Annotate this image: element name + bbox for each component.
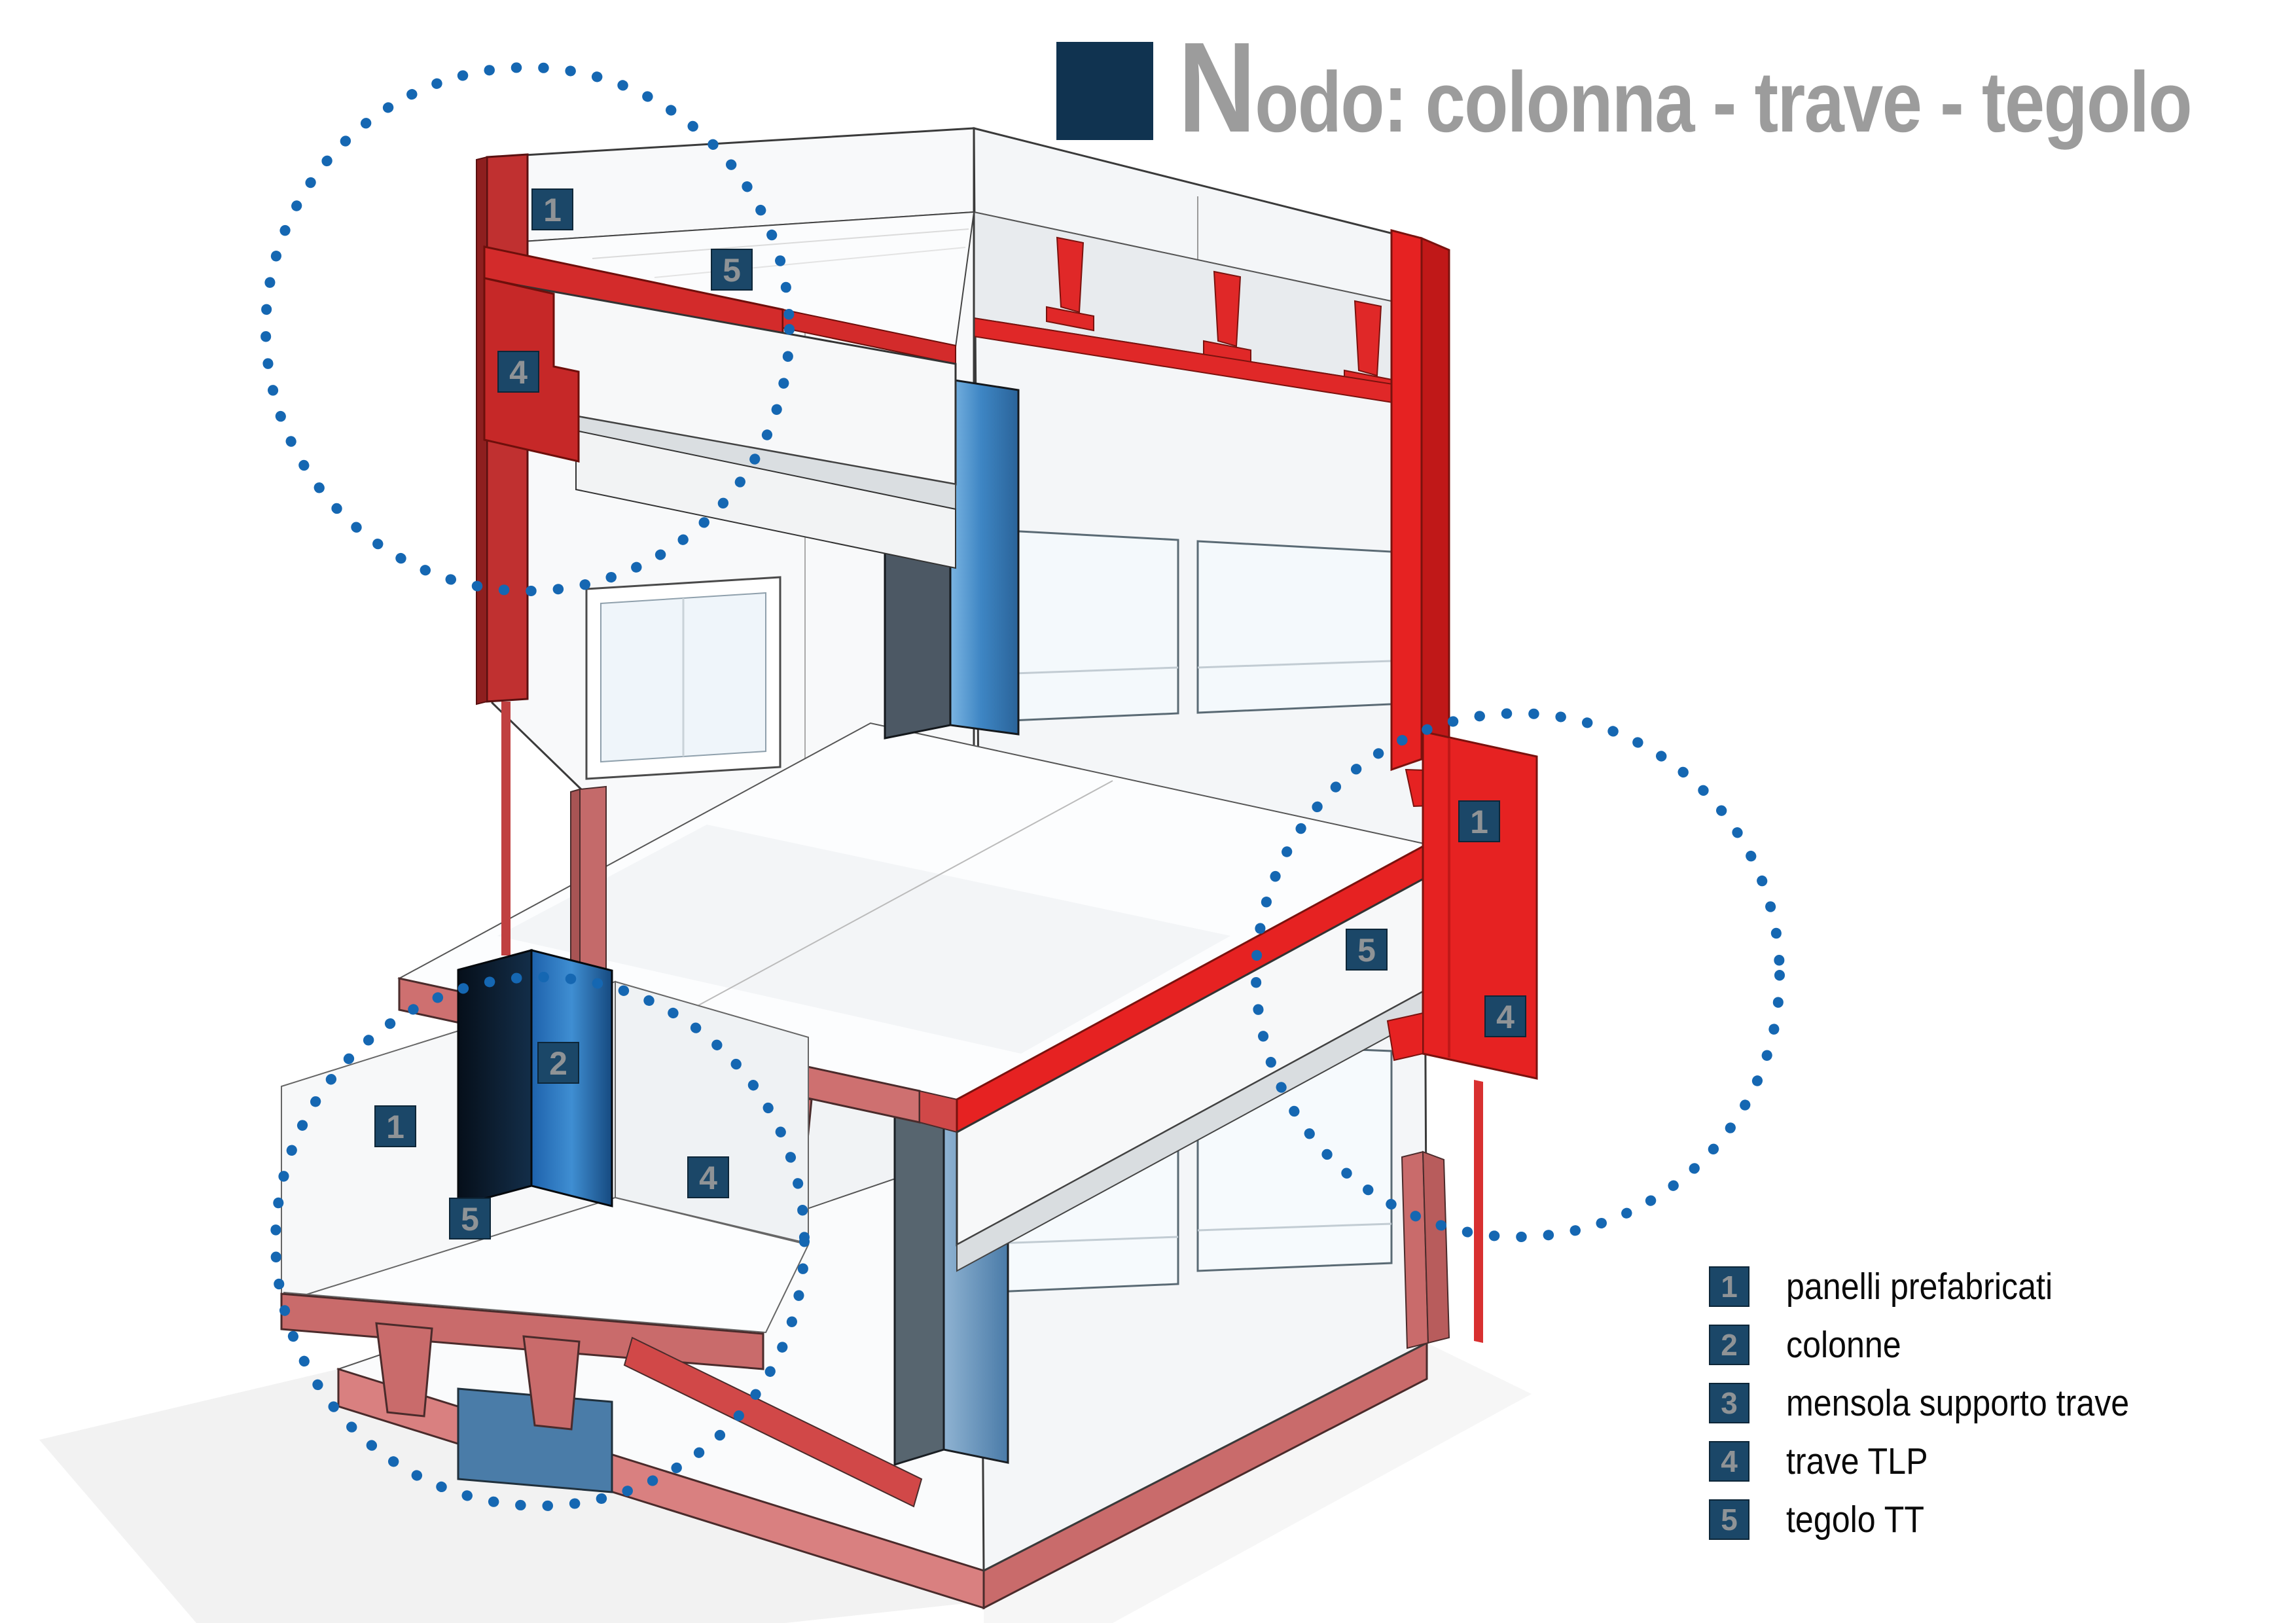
svg-text:5: 5 xyxy=(461,1201,479,1238)
legend-badge-number: 3 xyxy=(1721,1385,1738,1421)
legend-label: mensola supporto trave xyxy=(1786,1382,2129,1425)
legend-label: panelli prefabricati xyxy=(1786,1265,2053,1308)
callout-badge: 4 xyxy=(498,351,539,392)
legend-label: colonne xyxy=(1786,1323,1901,1366)
callout-badge: 5 xyxy=(1346,929,1387,970)
red-corner-column xyxy=(1391,230,1449,806)
legend-item: 2 colonne xyxy=(1709,1323,2176,1366)
legend-label: trave TLP xyxy=(1786,1440,1928,1483)
legend-item: 3 mensola supporto trave xyxy=(1709,1382,2176,1425)
title-initial: N xyxy=(1178,16,1255,159)
title-square xyxy=(1056,42,1153,140)
title-rest: odo: colonna - trave - tegolo xyxy=(1255,54,2191,150)
svg-text:1: 1 xyxy=(1470,804,1488,840)
legend-badge-number: 1 xyxy=(1721,1269,1738,1304)
callout-badge: 1 xyxy=(1459,801,1499,842)
svg-text:4: 4 xyxy=(509,354,528,391)
callout-badge: 1 xyxy=(532,189,573,230)
legend-badge: 5 xyxy=(1709,1499,1749,1540)
svg-text:2: 2 xyxy=(549,1045,567,1082)
red-drop-line xyxy=(1474,1080,1483,1343)
legend-badge-number: 4 xyxy=(1721,1444,1738,1479)
left-facade-window xyxy=(586,577,780,779)
legend-item: 4 trave TLP xyxy=(1709,1440,2176,1483)
legend-badge: 3 xyxy=(1709,1383,1749,1423)
legend-item: 1 panelli prefabricati xyxy=(1709,1265,2176,1308)
legend-label: tegolo TT xyxy=(1786,1498,1924,1541)
legend-item: 5 tegolo TT xyxy=(1709,1498,2176,1541)
svg-text:4: 4 xyxy=(699,1160,717,1196)
legend-badge-number: 5 xyxy=(1721,1502,1738,1537)
svg-text:4: 4 xyxy=(1496,999,1515,1035)
callout-badge: 5 xyxy=(711,249,752,290)
lower-corner-trim xyxy=(1402,1152,1449,1348)
callout-badge: 4 xyxy=(688,1157,728,1198)
callout-badge: 4 xyxy=(1485,996,1526,1037)
callout-badge: 2 xyxy=(538,1043,579,1083)
legend-badge: 4 xyxy=(1709,1441,1749,1482)
legend-badge-number: 2 xyxy=(1721,1327,1738,1363)
column-dark-face xyxy=(458,950,531,1205)
svg-text:1: 1 xyxy=(386,1109,404,1145)
legend: 1 panelli prefabricati 2 colonne 3 menso… xyxy=(1709,1265,2176,1541)
page: 1 5 4 1 5 4 1 2 5 4 Nodo: colonna - trav… xyxy=(0,0,2296,1623)
svg-text:5: 5 xyxy=(723,252,741,289)
page-title: Nodo: colonna - trave - tegolo xyxy=(1178,24,2191,152)
legend-badge: 2 xyxy=(1709,1325,1749,1365)
callout-badge: 5 xyxy=(450,1198,490,1239)
svg-text:5: 5 xyxy=(1357,932,1376,969)
svg-text:1: 1 xyxy=(543,192,562,228)
legend-badge: 1 xyxy=(1709,1266,1749,1307)
callout-badge: 1 xyxy=(375,1106,416,1147)
